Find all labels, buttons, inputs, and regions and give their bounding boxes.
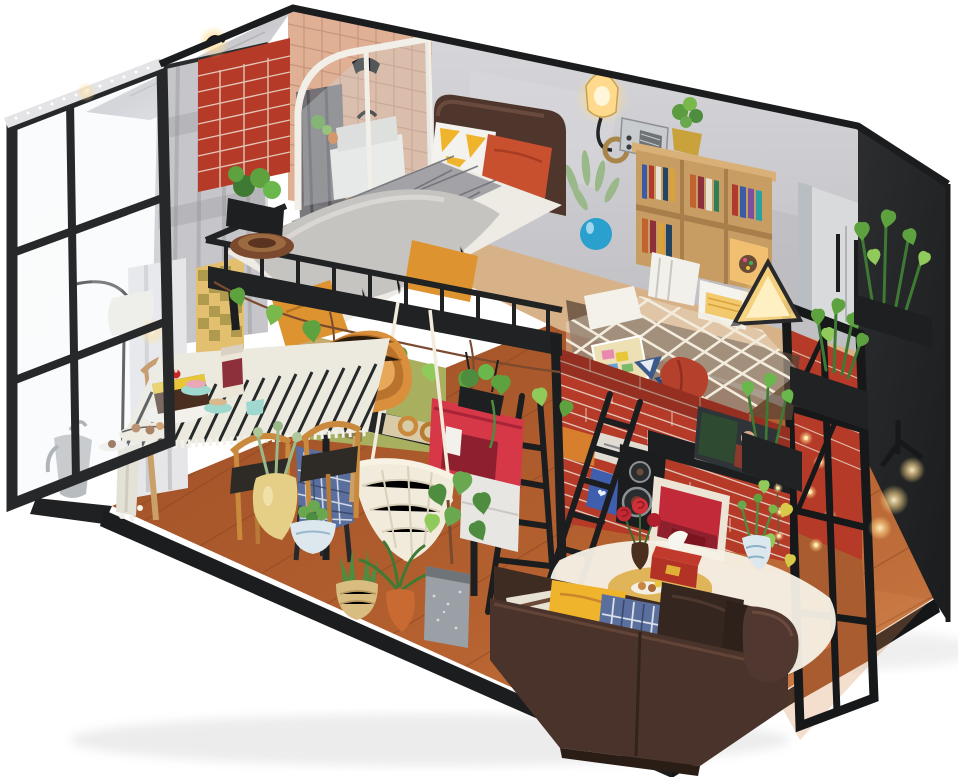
jar-label	[222, 358, 243, 388]
glass-jar	[220, 344, 244, 398]
wardrobe-handle	[836, 234, 840, 292]
wardrobe-handle	[854, 240, 858, 298]
dollhouse-photo: ❤	[0, 0, 958, 777]
wicker-nest	[230, 233, 294, 259]
dollhouse-illustration: ❤	[0, 0, 958, 777]
glass-door-wall	[4, 58, 170, 504]
